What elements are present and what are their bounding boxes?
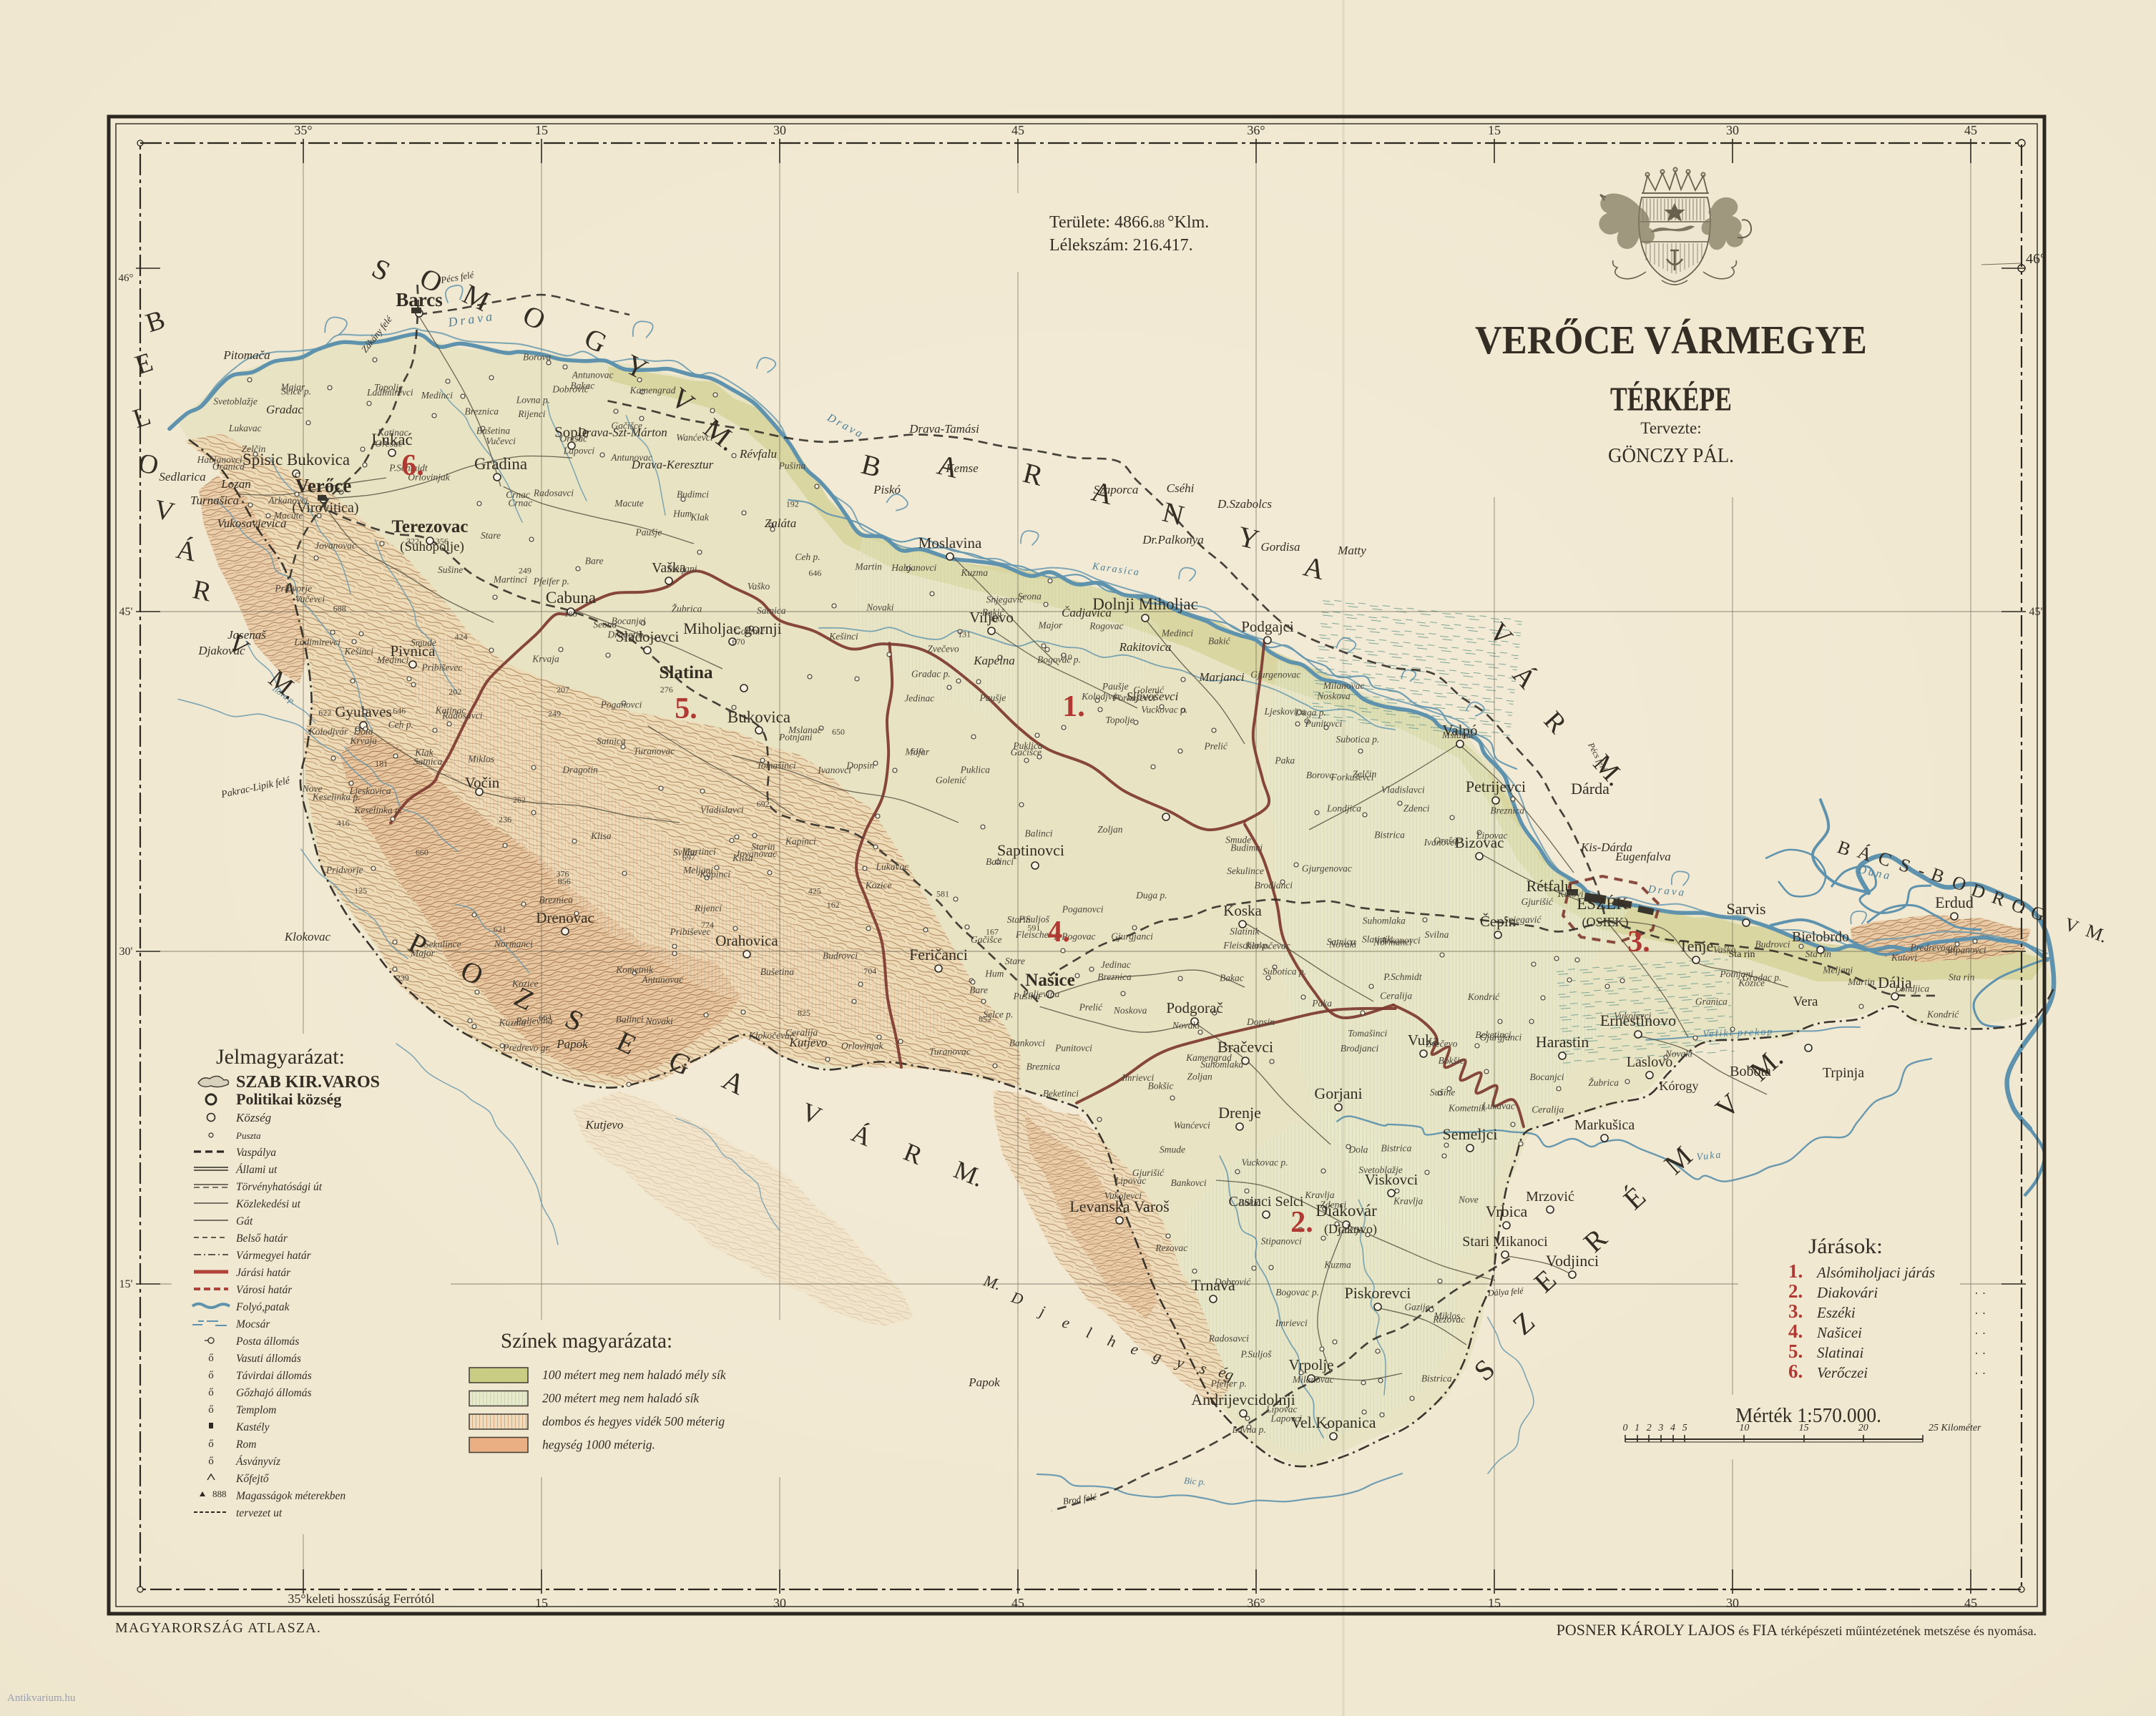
svg-text:424: 424 (455, 632, 468, 642)
svg-text:Kozice: Kozice (1738, 977, 1765, 988)
svg-text:Dragotin: Dragotin (607, 629, 643, 640)
svg-text:20: 20 (1858, 1423, 1868, 1433)
svg-text:416: 416 (337, 818, 350, 828)
svg-text:Posta állomás: Posta állomás (235, 1335, 299, 1348)
svg-text:Bakić: Bakić (1208, 636, 1231, 647)
svg-text:Sušine: Sušine (1430, 1087, 1455, 1097)
svg-text:Kutovi: Kutovi (1891, 952, 1917, 963)
svg-text:Mocsár: Mocsár (235, 1318, 270, 1330)
svg-text:Puklica: Puklica (1012, 740, 1042, 751)
svg-text:Bušetina: Bušetina (760, 966, 794, 977)
svg-text:239: 239 (396, 973, 409, 983)
svg-text:581: 581 (936, 888, 949, 898)
svg-text:45: 45 (1011, 1596, 1024, 1610)
svg-text:Snjegavić: Snjegavić (986, 594, 1024, 605)
svg-text:Klisa: Klisa (732, 853, 753, 863)
svg-text:Paljevina: Paljevina (1022, 989, 1060, 999)
svg-text:Gát: Gát (236, 1215, 253, 1227)
svg-text:Puszta: Puszta (235, 1130, 261, 1141)
svg-text:Erdud: Erdud (1935, 893, 1974, 911)
svg-text:Vučevci: Vučevci (486, 436, 516, 446)
svg-text:200 métert meg nem haladó sík: 200 métert meg nem haladó sík (542, 1391, 700, 1406)
svg-text:646: 646 (393, 705, 406, 715)
svg-text:Állami ut: Állami ut (235, 1164, 278, 1176)
svg-text:Tomašinci: Tomašinci (757, 760, 796, 771)
svg-text:660: 660 (416, 848, 428, 858)
svg-text:Gazije: Gazije (1338, 1225, 1363, 1235)
svg-text:Klokočevac: Klokočevac (748, 1030, 794, 1041)
svg-text:Vasuti állomás: Vasuti állomás (236, 1353, 301, 1365)
svg-text:45: 45 (1964, 1596, 1977, 1610)
svg-text:Városi határ: Városi határ (236, 1284, 293, 1296)
svg-text:664: 664 (539, 1012, 552, 1022)
svg-text:Kuzma: Kuzma (499, 1017, 526, 1028)
svg-text:Kórogy: Kórogy (1660, 1079, 1699, 1093)
svg-text:45: 45 (1011, 123, 1024, 137)
svg-text:Bielobrdo: Bielobrdo (1792, 929, 1849, 945)
svg-text:Radosavci: Radosavci (441, 710, 482, 721)
svg-text:Vaško: Vaško (1713, 944, 1736, 955)
svg-text:Kometnik: Kometnik (1448, 1102, 1486, 1113)
svg-text:Beketinci: Beketinci (1043, 1088, 1079, 1099)
svg-text:Vukojevci: Vukojevci (1614, 1011, 1651, 1021)
svg-text:ő: ő (208, 1404, 214, 1416)
svg-text:Turanovac: Turanovac (634, 745, 675, 756)
svg-text:Ivanovci: Ivanovci (1424, 837, 1458, 848)
svg-text:249: 249 (519, 565, 531, 575)
svg-text:Harastin: Harastin (1536, 1033, 1589, 1051)
svg-text:Magasságok méterekben: Magasságok méterekben (235, 1490, 346, 1502)
svg-text:Selce p.: Selce p. (281, 386, 311, 397)
svg-text:ő: ő (208, 1438, 214, 1450)
svg-text:3: 3 (1657, 1423, 1663, 1433)
svg-text:Rezovac: Rezovac (1155, 1242, 1187, 1253)
svg-text:Stare: Stare (1005, 956, 1025, 966)
svg-text:Predrevo gr.: Predrevo gr. (502, 1042, 551, 1053)
svg-text:Kamengrad: Kamengrad (629, 385, 676, 396)
svg-text:Duga p.: Duga p. (1135, 890, 1167, 901)
svg-text:Rijenci: Rijenci (517, 408, 545, 419)
svg-text:Londjica: Londjica (1894, 983, 1929, 994)
svg-text:Tenje: Tenje (1679, 937, 1714, 955)
svg-text:774: 774 (701, 920, 714, 930)
svg-text:Normanci: Normanci (494, 938, 533, 949)
svg-text:°Klm.: °Klm. (1167, 213, 1209, 232)
svg-text:Gjurgenovac: Gjurgenovac (1250, 669, 1300, 680)
svg-text:Lipovac: Lipovac (1476, 830, 1508, 841)
svg-text:Borova: Borova (1306, 770, 1334, 780)
svg-text:Kapelna: Kapelna (973, 654, 1015, 667)
svg-text:Breznica: Breznica (1490, 805, 1524, 815)
svg-text:Klisa: Klisa (590, 830, 612, 841)
svg-text:356: 356 (436, 536, 449, 546)
svg-text:dombos és hegyes vidék 500 mét: dombos és hegyes vidék 500 méterig (542, 1414, 725, 1428)
svg-text:4: 4 (1670, 1423, 1675, 1433)
svg-text:Vočin: Vočin (465, 774, 500, 791)
svg-text:1.: 1. (1788, 1260, 1803, 1282)
svg-text:Zdenci: Zdenci (1403, 803, 1430, 813)
svg-text:Orešac: Orešac (560, 433, 588, 444)
svg-text:5.: 5. (675, 692, 697, 725)
svg-text:Cabuna: Cabuna (546, 589, 596, 607)
svg-text:Bare: Bare (969, 984, 988, 995)
svg-text:Balinci: Balinci (986, 856, 1014, 867)
svg-text:Jedinac: Jedinac (1101, 959, 1131, 970)
svg-text:Našice: Našice (1025, 971, 1074, 990)
svg-text:35°: 35° (294, 123, 312, 137)
svg-text:Verőce: Verőce (295, 475, 351, 496)
svg-text:Kolodjvár: Kolodjvár (308, 726, 348, 737)
svg-text:hegység 1000 méterig.: hegység 1000 méterig. (542, 1438, 655, 1452)
svg-text:621: 621 (494, 924, 506, 934)
svg-text:Hum: Hum (984, 969, 1004, 979)
svg-text:Lovna p.: Lovna p. (516, 394, 550, 405)
svg-text:Martinci: Martinci (493, 574, 527, 584)
svg-text:Eszéki: Eszéki (1816, 1304, 1856, 1321)
svg-text:Novaki: Novaki (1172, 1020, 1200, 1031)
svg-text:Vuckovac p.: Vuckovac p. (1242, 1157, 1288, 1167)
svg-text:Bare: Bare (585, 555, 604, 566)
svg-text:Sta rin: Sta rin (1805, 948, 1832, 959)
svg-text:88: 88 (1153, 218, 1165, 230)
svg-text:Breznica: Breznica (539, 895, 573, 906)
svg-text:Stare: Stare (481, 530, 501, 541)
svg-text:· ·: · · (1974, 1286, 1986, 1300)
svg-text:Arkanovci: Arkanovci (268, 495, 308, 506)
svg-text:Vármegyei határ: Vármegyei határ (236, 1250, 312, 1262)
svg-text:Bistrica: Bistrica (1374, 829, 1405, 840)
svg-text:Našicei: Našicei (1816, 1324, 1862, 1341)
svg-text:2.: 2. (1290, 1206, 1313, 1239)
svg-text:Paušje: Paušje (635, 526, 662, 537)
svg-text:Gradac: Gradac (266, 403, 303, 416)
svg-text:Medinci: Medinci (376, 654, 408, 665)
svg-text:Dobrović: Dobrović (552, 383, 589, 394)
svg-text:1.: 1. (1062, 690, 1085, 723)
svg-text:Papok: Papok (968, 1376, 1000, 1389)
svg-text:Dola: Dola (1348, 1144, 1368, 1155)
svg-text:262: 262 (513, 795, 526, 805)
svg-text:4.: 4. (1788, 1320, 1803, 1342)
svg-text:Lozan: Lozan (220, 477, 251, 491)
svg-text:Piskorevci: Piskorevci (1345, 1284, 1411, 1302)
svg-text:Antunovac: Antunovac (610, 452, 652, 463)
svg-text:Orahovica: Orahovica (715, 932, 778, 949)
svg-text:670: 670 (732, 637, 745, 647)
svg-text:Sušine: Sušine (438, 564, 463, 575)
svg-text:Bocanjci: Bocanjci (1530, 1072, 1564, 1082)
svg-text:25 Kilométer: 25 Kilométer (1929, 1423, 1981, 1433)
svg-text:TÉRKÉPE: TÉRKÉPE (1610, 381, 1732, 418)
svg-text:Bankovci: Bankovci (1009, 1037, 1045, 1048)
svg-text:· ·: · · (1974, 1306, 1986, 1320)
svg-text:Novaki: Novaki (645, 1016, 672, 1026)
svg-text:692: 692 (757, 799, 770, 809)
svg-text:45': 45' (119, 606, 133, 618)
svg-text:Rogovac: Rogovac (1089, 620, 1123, 631)
svg-text:Smude: Smude (411, 637, 436, 648)
svg-text:Alsómiholjaci járás: Alsómiholjaci járás (1816, 1264, 1935, 1281)
svg-text:Lapovci: Lapovci (1270, 1413, 1303, 1423)
svg-text:Verőczei: Verőczei (1817, 1364, 1868, 1381)
svg-text:Lapovci: Lapovci (563, 446, 595, 456)
svg-text:Piskó: Piskó (873, 483, 901, 496)
svg-text:Miklos: Miklos (467, 753, 494, 764)
svg-text:Bistrica: Bistrica (1421, 1373, 1452, 1383)
svg-text:Bic p.: Bic p. (1184, 1475, 1206, 1487)
svg-text:Punitovci: Punitovci (1054, 1043, 1092, 1054)
svg-text:Čadjavica: Čadjavica (1062, 606, 1112, 619)
svg-text:Ceralija: Ceralija (1532, 1104, 1564, 1114)
svg-text:Gjurgjanci: Gjurgjanci (1480, 1032, 1522, 1043)
svg-text:Turanovac: Turanovac (929, 1046, 971, 1056)
svg-text:Kozice: Kozice (865, 880, 892, 891)
svg-text:Lukavac: Lukavac (876, 861, 909, 872)
svg-text:Bakac: Bakac (1220, 973, 1244, 984)
svg-text:Bakić: Bakić (1238, 1197, 1261, 1208)
svg-text:Klak: Klak (690, 512, 710, 523)
svg-text:Macute: Macute (273, 510, 303, 521)
svg-text:3.: 3. (1627, 926, 1650, 958)
svg-text:Medinci: Medinci (1161, 627, 1193, 638)
svg-text:192: 192 (786, 499, 799, 509)
svg-text:Satnica: Satnica (597, 735, 626, 746)
svg-text:Paka: Paka (1274, 755, 1295, 766)
svg-text:15: 15 (1488, 1596, 1501, 1610)
svg-text:Keselinka p.: Keselinka p. (353, 805, 402, 815)
svg-text:Révfalu: Révfalu (739, 447, 777, 461)
svg-text:46°: 46° (2026, 251, 2046, 267)
svg-text:Vrpolje: Vrpolje (1289, 1356, 1334, 1373)
svg-text:10: 10 (1739, 1423, 1749, 1433)
svg-text:Területe: 4866.: Területe: 4866. (1049, 213, 1153, 232)
svg-text:591: 591 (1027, 923, 1040, 933)
svg-text:Drenovac: Drenovac (536, 909, 594, 926)
svg-text:100 métert meg nem haladó mély: 100 métert meg nem haladó mély sík (542, 1368, 727, 1382)
svg-text:Radosavci: Radosavci (1208, 1333, 1249, 1344)
svg-text:697: 697 (682, 852, 695, 862)
svg-text:Feričanci: Feričanci (909, 946, 968, 964)
svg-text:125: 125 (354, 886, 367, 896)
svg-text:207: 207 (557, 685, 569, 695)
svg-text:· ·: · · (1974, 1326, 1986, 1340)
svg-text:Crnac: Crnac (508, 497, 532, 508)
svg-text:Vladislavci: Vladislavci (1381, 784, 1425, 795)
svg-text:Mslanac: Mslanac (788, 725, 822, 735)
svg-text:D.Szabolcs: D.Szabolcs (1217, 497, 1272, 511)
svg-text:Pridvorje: Pridvorje (274, 583, 312, 594)
svg-text:Smude: Smude (1160, 1144, 1185, 1155)
svg-text:Orešac: Orešac (375, 438, 403, 449)
svg-text:SZAB KIR.VAROS: SZAB KIR.VAROS (236, 1073, 380, 1092)
svg-text:6.: 6. (401, 449, 424, 482)
svg-text:Bokšic: Bokšic (1439, 1055, 1464, 1066)
svg-text:Seona: Seona (593, 619, 617, 630)
svg-text:425: 425 (808, 886, 821, 896)
svg-text:Lipovac: Lipovac (1114, 1175, 1147, 1186)
svg-text:181: 181 (375, 758, 388, 768)
svg-text:Mrzović: Mrzović (1526, 1189, 1574, 1205)
svg-text:Bukovica: Bukovica (727, 708, 790, 726)
svg-text:167: 167 (986, 926, 999, 936)
svg-text:Pušina: Pušina (778, 461, 806, 471)
svg-text:46°: 46° (119, 273, 134, 284)
svg-text:Podgorač: Podgorač (1166, 999, 1222, 1016)
svg-text:Rezovac: Rezovac (1432, 1314, 1465, 1325)
svg-text:Punitovci: Punitovci (1304, 718, 1342, 729)
svg-text:Markušica: Markušica (1574, 1117, 1635, 1133)
svg-text:Poganovci: Poganovci (1062, 903, 1104, 914)
svg-text:15: 15 (535, 1596, 548, 1610)
svg-text:Eugenfalva: Eugenfalva (1614, 850, 1670, 863)
svg-text:Ljeskovica: Ljeskovica (1264, 706, 1306, 717)
svg-text:Major: Major (1037, 620, 1062, 631)
svg-text:Jedinac: Jedinac (904, 692, 934, 703)
svg-text:5: 5 (1682, 1423, 1687, 1433)
svg-text:Pitomača: Pitomača (222, 348, 270, 362)
svg-text:Prelić: Prelić (1079, 1001, 1103, 1012)
svg-text:Tomašinci: Tomašinci (1348, 1028, 1387, 1039)
svg-text:Milanovac: Milanovac (1292, 1374, 1334, 1385)
svg-text:Katinac: Katinac (377, 427, 408, 438)
svg-text:35°keleti hosszúság Ferrótól: 35°keleti hosszúság Ferrótól (288, 1592, 434, 1606)
svg-text:Kőfejtő: Kőfejtő (235, 1473, 270, 1485)
svg-text:Antunovac: Antunovac (641, 974, 683, 985)
svg-text:Budrovci: Budrovci (823, 951, 858, 961)
svg-text:Macute: Macute (614, 498, 643, 509)
svg-text:0: 0 (1623, 1423, 1628, 1433)
svg-text:Slatinik: Slatinik (1362, 934, 1392, 945)
svg-text:Kastély: Kastély (235, 1421, 270, 1433)
svg-text:276: 276 (660, 685, 673, 695)
svg-text:825: 825 (798, 1008, 810, 1018)
svg-text:Sedlarica: Sedlarica (159, 470, 205, 484)
svg-text:Martin: Martin (854, 562, 882, 572)
svg-text:Žubrica: Žubrica (1588, 1077, 1619, 1088)
svg-text:Matty: Matty (1337, 544, 1366, 557)
svg-text:Radosavci: Radosavci (533, 488, 574, 499)
svg-text:Klak: Klak (414, 747, 434, 758)
svg-text:110: 110 (1059, 652, 1072, 662)
svg-text:Brodjanci: Brodjanci (1341, 1043, 1379, 1054)
svg-text:376: 376 (556, 869, 569, 879)
svg-text:ő: ő (208, 1370, 214, 1381)
svg-text:Zaláta: Zaláta (765, 516, 796, 530)
svg-text:Ladimirevci: Ladimirevci (366, 387, 413, 398)
svg-text:Granica: Granica (1695, 996, 1728, 1006)
svg-text:Paušje: Paušje (1102, 681, 1129, 692)
svg-text:Fleischer p.: Fleischer p. (1222, 940, 1269, 951)
svg-text:Martin: Martin (1847, 976, 1875, 987)
svg-text:Meljani: Meljani (682, 865, 713, 876)
svg-text:Gazije: Gazije (1404, 1301, 1429, 1312)
svg-text:202: 202 (449, 687, 461, 697)
svg-text:Slatinik: Slatinik (1230, 926, 1260, 937)
svg-text:Gyulaves: Gyulaves (335, 703, 391, 720)
svg-text:Kešinci: Kešinci (344, 646, 374, 657)
svg-text:Slatina: Slatina (659, 663, 713, 682)
svg-text:Kutjevo: Kutjevo (585, 1118, 624, 1132)
svg-text:2.: 2. (1788, 1280, 1803, 1302)
svg-text:688: 688 (333, 603, 346, 613)
svg-text:ő: ő (208, 1387, 214, 1398)
svg-text:Koska: Koska (1223, 902, 1262, 919)
svg-text:Budimci: Budimci (1230, 843, 1263, 853)
svg-text:Habjanovci: Habjanovci (197, 454, 242, 465)
svg-text:Zvečevo: Zvečevo (927, 643, 959, 654)
svg-text:Dragotin: Dragotin (562, 765, 598, 775)
svg-text:Semeljci: Semeljci (1443, 1125, 1498, 1143)
svg-text:Lovna p.: Lovna p. (1231, 1424, 1265, 1435)
svg-text:Papok: Papok (556, 1037, 588, 1051)
svg-text:Noskova: Noskova (1316, 690, 1351, 701)
svg-text:Dopsin: Dopsin (846, 760, 874, 771)
svg-text:888: 888 (212, 1489, 227, 1499)
svg-text:Ladimirevci: Ladimirevci (293, 637, 340, 647)
svg-text:Balinci: Balinci (1025, 828, 1053, 838)
svg-text:Vladislavci: Vladislavci (700, 804, 744, 815)
svg-text:Vrbica: Vrbica (1486, 1202, 1528, 1220)
svg-text:2: 2 (1647, 1423, 1652, 1433)
svg-text:Gorjani: Gorjani (1314, 1084, 1362, 1102)
svg-text:15: 15 (1488, 123, 1501, 137)
svg-text:Petrijevci: Petrijevci (1466, 778, 1526, 795)
svg-text:Breznica: Breznica (1097, 971, 1132, 982)
svg-text:Gordisa: Gordisa (1260, 540, 1300, 554)
svg-text:Kešinci: Kešinci (828, 631, 858, 642)
svg-text:Belső határ: Belső határ (236, 1232, 288, 1245)
svg-text:162: 162 (827, 900, 840, 910)
svg-text:Kapinci: Kapinci (785, 836, 816, 847)
svg-text:Antikvarium.hu: Antikvarium.hu (7, 1692, 76, 1704)
svg-text:P.Schmidt: P.Schmidt (1383, 971, 1423, 982)
svg-text:Paušje: Paušje (979, 692, 1006, 703)
svg-text:Bogovac p.: Bogovac p. (1275, 1287, 1319, 1298)
svg-text:Breznica: Breznica (1026, 1062, 1061, 1072)
svg-text:Vuckovac p.: Vuckovac p. (1141, 705, 1187, 715)
svg-text:Gjurišić: Gjurišić (1522, 896, 1554, 907)
svg-text:Lukavac: Lukavac (228, 423, 262, 433)
svg-text:Dopsin: Dopsin (1246, 1016, 1275, 1027)
svg-text:650: 650 (832, 727, 845, 737)
svg-text:Paka: Paka (1311, 998, 1332, 1009)
svg-text:188: 188 (564, 609, 577, 619)
svg-text:Zelčin: Zelčin (1353, 769, 1377, 780)
svg-text:Rijenci: Rijenci (694, 903, 722, 913)
svg-text:Orlovinjak: Orlovinjak (841, 1041, 883, 1051)
svg-text:Zelčin: Zelčin (242, 443, 266, 454)
svg-text:30: 30 (773, 123, 786, 137)
svg-text:Medinci: Medinci (421, 390, 453, 401)
svg-text:Gőzhajó állomás: Gőzhajó állomás (236, 1387, 312, 1399)
svg-text:Habjanovci: Habjanovci (891, 562, 936, 573)
svg-text:Járási határ: Járási határ (236, 1267, 291, 1279)
svg-text:ESZÉK: ESZÉK (1577, 895, 1628, 913)
svg-text:36°: 36° (1247, 1596, 1265, 1610)
svg-text:Snjegavić: Snjegavić (1504, 914, 1542, 925)
svg-text:Pfeifer p.: Pfeifer p. (533, 576, 569, 587)
svg-text:Gačišce: Gačišce (611, 421, 642, 431)
svg-text:Zoljan: Zoljan (1097, 824, 1123, 835)
svg-text:6.: 6. (1788, 1360, 1803, 1382)
svg-text:· ·: · · (1974, 1366, 1986, 1381)
svg-text:Noskova: Noskova (1113, 1005, 1147, 1016)
svg-text:MAGYARORSZÁG ATLASZA.: MAGYARORSZÁG ATLASZA. (115, 1619, 321, 1636)
svg-text:Diakovári: Diakovári (1816, 1284, 1878, 1301)
svg-text:Zvečevo: Zvečevo (1426, 1038, 1457, 1049)
svg-text:ő: ő (208, 1456, 214, 1467)
svg-text:Rakitovica: Rakitovica (1119, 640, 1172, 654)
